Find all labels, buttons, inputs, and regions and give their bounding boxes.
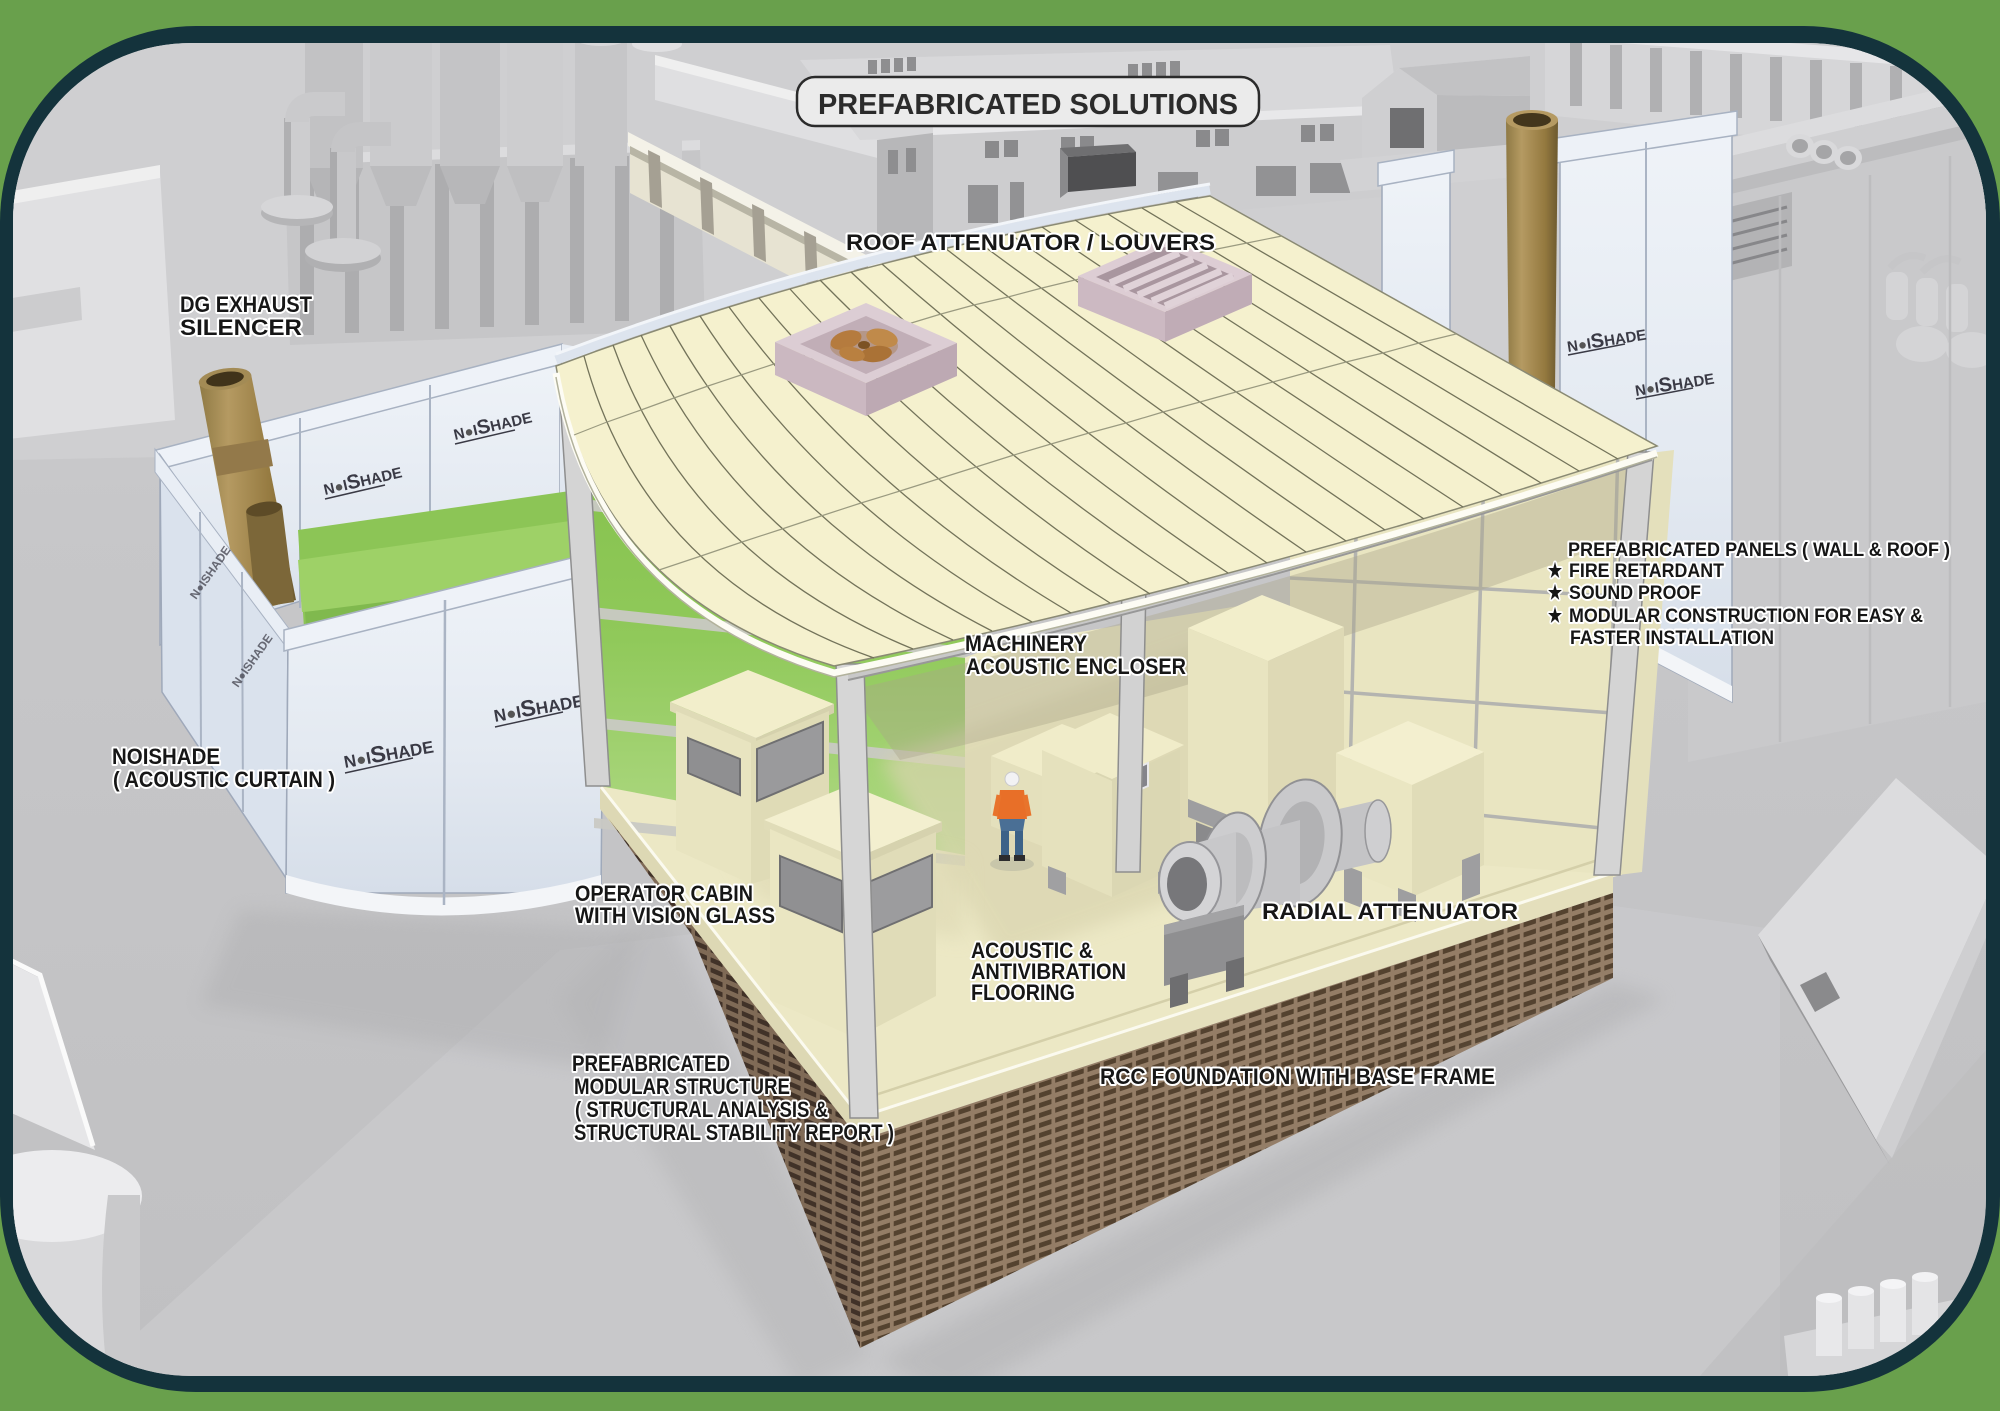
svg-text:( ACOUSTIC CURTAIN ): ( ACOUSTIC CURTAIN ) — [113, 767, 335, 792]
svg-text:PREFABRICATED: PREFABRICATED — [572, 1051, 730, 1076]
svg-text:ACOUSTIC ENCLOSER: ACOUSTIC ENCLOSER — [966, 654, 1186, 679]
svg-text:ROOF ATTENUATOR / LOUVERS: ROOF ATTENUATOR / LOUVERS — [846, 230, 1215, 255]
svg-text:RCC FOUNDATION WITH BASE FRAME: RCC FOUNDATION WITH BASE FRAME — [1100, 1064, 1495, 1089]
svg-text:MACHINERY: MACHINERY — [965, 631, 1087, 656]
svg-text:★: ★ — [1548, 605, 1562, 627]
svg-text:DG EXHAUST: DG EXHAUST — [180, 292, 313, 317]
svg-text:WITH VISION GLASS: WITH VISION GLASS — [575, 903, 775, 928]
svg-text:( STRUCTURAL ANALYSIS &: ( STRUCTURAL ANALYSIS & — [575, 1097, 828, 1122]
svg-text:FLOORING: FLOORING — [971, 980, 1075, 1005]
svg-text:SILENCER: SILENCER — [180, 315, 302, 340]
svg-text:PREFABRICATED SOLUTIONS: PREFABRICATED SOLUTIONS — [818, 89, 1238, 121]
svg-text:FIRE RETARDANT: FIRE RETARDANT — [1569, 560, 1724, 582]
svg-text:STRUCTURAL STABILITY REPORT ): STRUCTURAL STABILITY REPORT ) — [574, 1120, 894, 1145]
svg-text:MODULAR CONSTRUCTION FOR EASY: MODULAR CONSTRUCTION FOR EASY & — [1569, 605, 1923, 627]
svg-text:MODULAR STRUCTURE: MODULAR STRUCTURE — [574, 1074, 790, 1099]
svg-text:NOISHADE: NOISHADE — [112, 744, 220, 769]
svg-text:FASTER INSTALLATION: FASTER INSTALLATION — [1570, 627, 1774, 649]
svg-text:PREFABRICATED PANELS ( WALL &: PREFABRICATED PANELS ( WALL & ROOF ) — [1568, 539, 1950, 561]
svg-text:★: ★ — [1548, 560, 1562, 582]
svg-text:RADIAL ATTENUATOR: RADIAL ATTENUATOR — [1262, 899, 1518, 924]
svg-text:★: ★ — [1548, 582, 1562, 604]
svg-text:SOUND PROOF: SOUND PROOF — [1569, 582, 1701, 604]
